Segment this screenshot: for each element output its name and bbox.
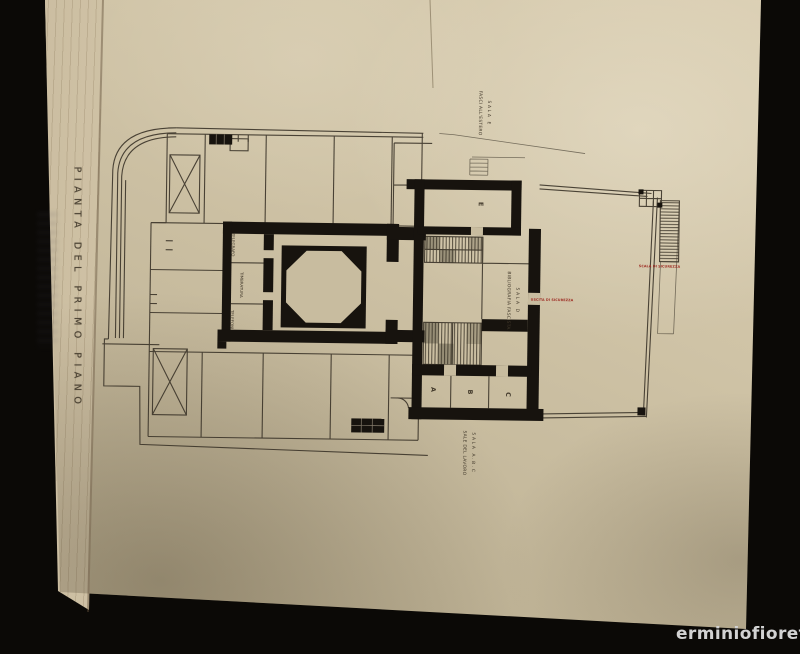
watermark: erminiofioretti xyxy=(676,624,800,644)
photo-scene: SALA E FASCI ALL'ESTERO SALA D BIBLIOGRA… xyxy=(0,0,800,654)
photo-vignette xyxy=(0,0,800,654)
